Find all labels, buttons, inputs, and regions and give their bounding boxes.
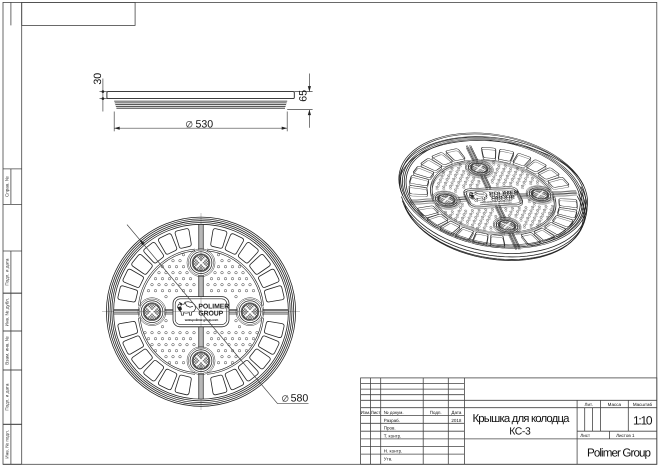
svg-text:Справ. №: Справ. №	[4, 176, 9, 197]
svg-text:Утв.: Утв.	[384, 456, 393, 461]
svg-text:Н. контр.: Н. контр.	[384, 449, 403, 454]
svg-text:Инв. № подл.: Инв. № подл.	[4, 430, 9, 459]
svg-text:2018: 2018	[451, 418, 462, 423]
svg-text:Масса: Масса	[608, 402, 622, 407]
svg-text:Подп. и дата: Подп. и дата	[4, 258, 9, 286]
svg-text:Инв. № дубл.: Инв. № дубл.	[4, 298, 9, 326]
svg-text:530: 530	[196, 118, 214, 130]
svg-text:Масштаб: Масштаб	[633, 402, 653, 407]
svg-text:Подп. и дата: Подп. и дата	[4, 383, 9, 411]
svg-text:Polimer Group: Polimer Group	[587, 447, 651, 460]
svg-text:580: 580	[291, 393, 309, 405]
svg-text:Дата: Дата	[451, 410, 461, 415]
svg-text:1:10: 1:10	[633, 413, 653, 427]
svg-text:Крышка для колодца: Крышка для колодца	[473, 413, 571, 425]
svg-text:Т. контр.: Т. контр.	[384, 433, 402, 438]
svg-text:Лист: Лист	[580, 433, 590, 438]
svg-text:КС-3: КС-3	[509, 426, 531, 437]
svg-text:№ докум.: № докум.	[384, 410, 404, 415]
svg-text:Листов 1: Листов 1	[616, 433, 635, 438]
svg-text:Подп.: Подп.	[430, 410, 442, 415]
svg-text:Лит.: Лит.	[585, 402, 593, 407]
svg-text:Пров.: Пров.	[384, 426, 396, 431]
svg-text:Лист: Лист	[371, 410, 381, 415]
svg-text:Изм.: Изм.	[361, 410, 371, 415]
svg-text:65: 65	[298, 90, 310, 102]
svg-text:Взам. инв. №: Взам. инв. №	[4, 336, 9, 365]
svg-text:30: 30	[92, 73, 104, 85]
svg-text:Разраб.: Разраб.	[384, 418, 400, 423]
